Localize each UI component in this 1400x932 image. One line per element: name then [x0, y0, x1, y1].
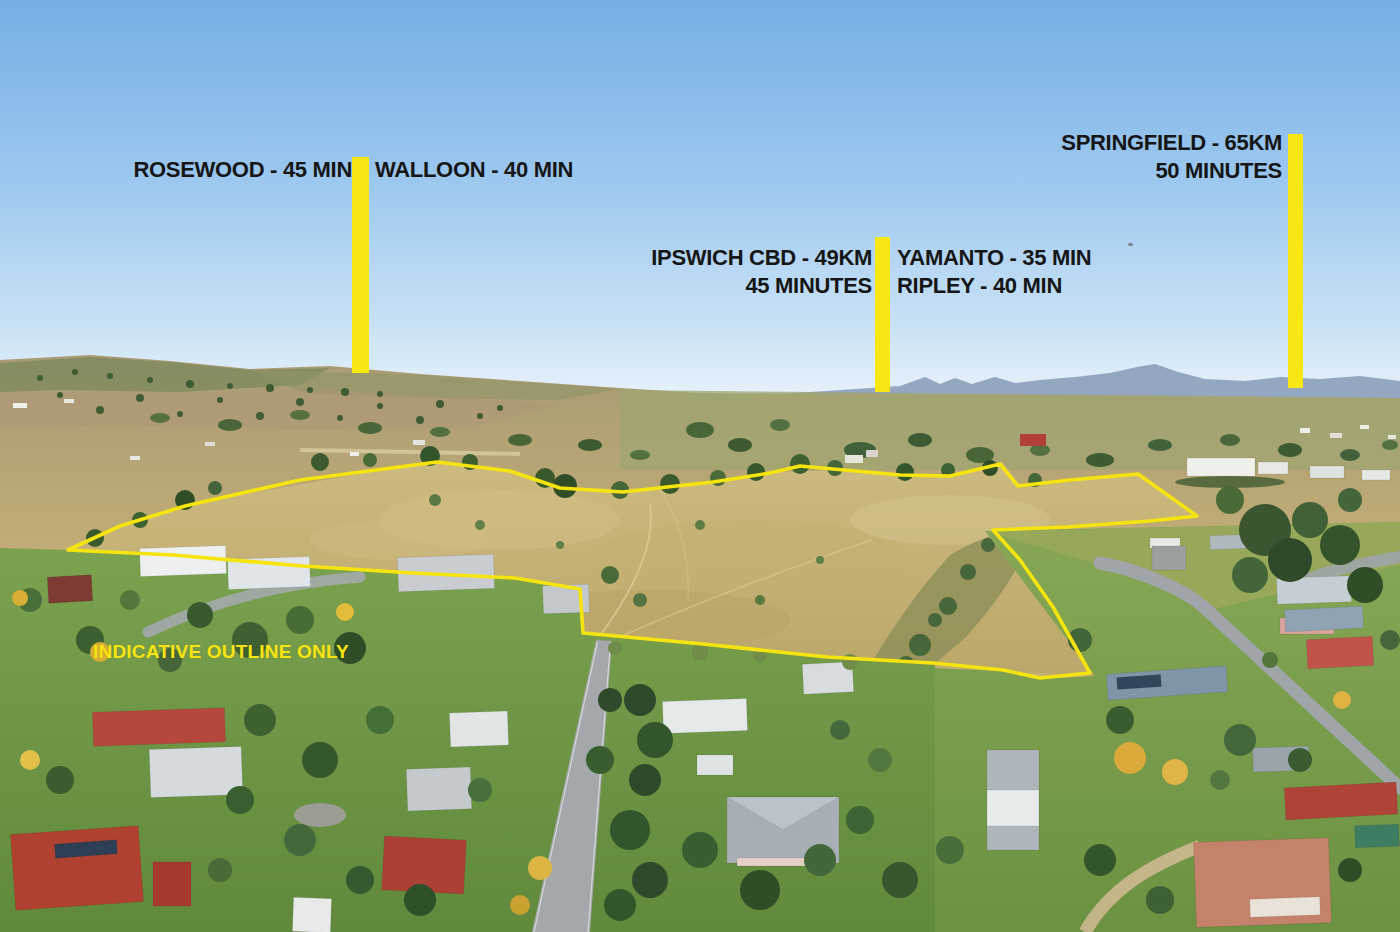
marker-bar-ipswich-yamanto: [875, 237, 890, 392]
label-springfield-distance: SPRINGFIELD - 65KM: [1061, 129, 1282, 157]
label-ipswich-cbd: IPSWICH CBD - 49KM 45 MINUTES: [651, 244, 872, 300]
label-ipswich-time: 45 MINUTES: [651, 272, 872, 300]
label-springfield-time: 50 MINUTES: [1061, 157, 1282, 185]
town-band: [620, 390, 1400, 470]
label-rosewood: ROSEWOOD - 45 MIN: [133, 156, 352, 184]
label-indicative-outline-disclaimer: INDICATIVE OUTLINE ONLY: [93, 640, 349, 664]
aerial-property-photo: ROSEWOOD - 45 MIN WALLOON - 40 MIN IPSWI…: [0, 0, 1400, 932]
marker-bar-rosewood-walloon: [352, 157, 369, 373]
label-ipswich-distance: IPSWICH CBD - 49KM: [651, 244, 872, 272]
label-yamanto-ripley: YAMANTO - 35 MIN RIPLEY - 40 MIN: [897, 244, 1091, 300]
bird-speck: [1128, 243, 1133, 246]
label-springfield: SPRINGFIELD - 65KM 50 MINUTES: [1061, 129, 1282, 185]
sky: [0, 0, 1400, 402]
rock-outcrop: [294, 803, 346, 827]
marker-bar-springfield: [1288, 134, 1303, 388]
label-yamanto: YAMANTO - 35 MIN: [897, 244, 1091, 272]
label-walloon: WALLOON - 40 MIN: [375, 156, 573, 184]
label-ripley: RIPLEY - 40 MIN: [897, 272, 1091, 300]
